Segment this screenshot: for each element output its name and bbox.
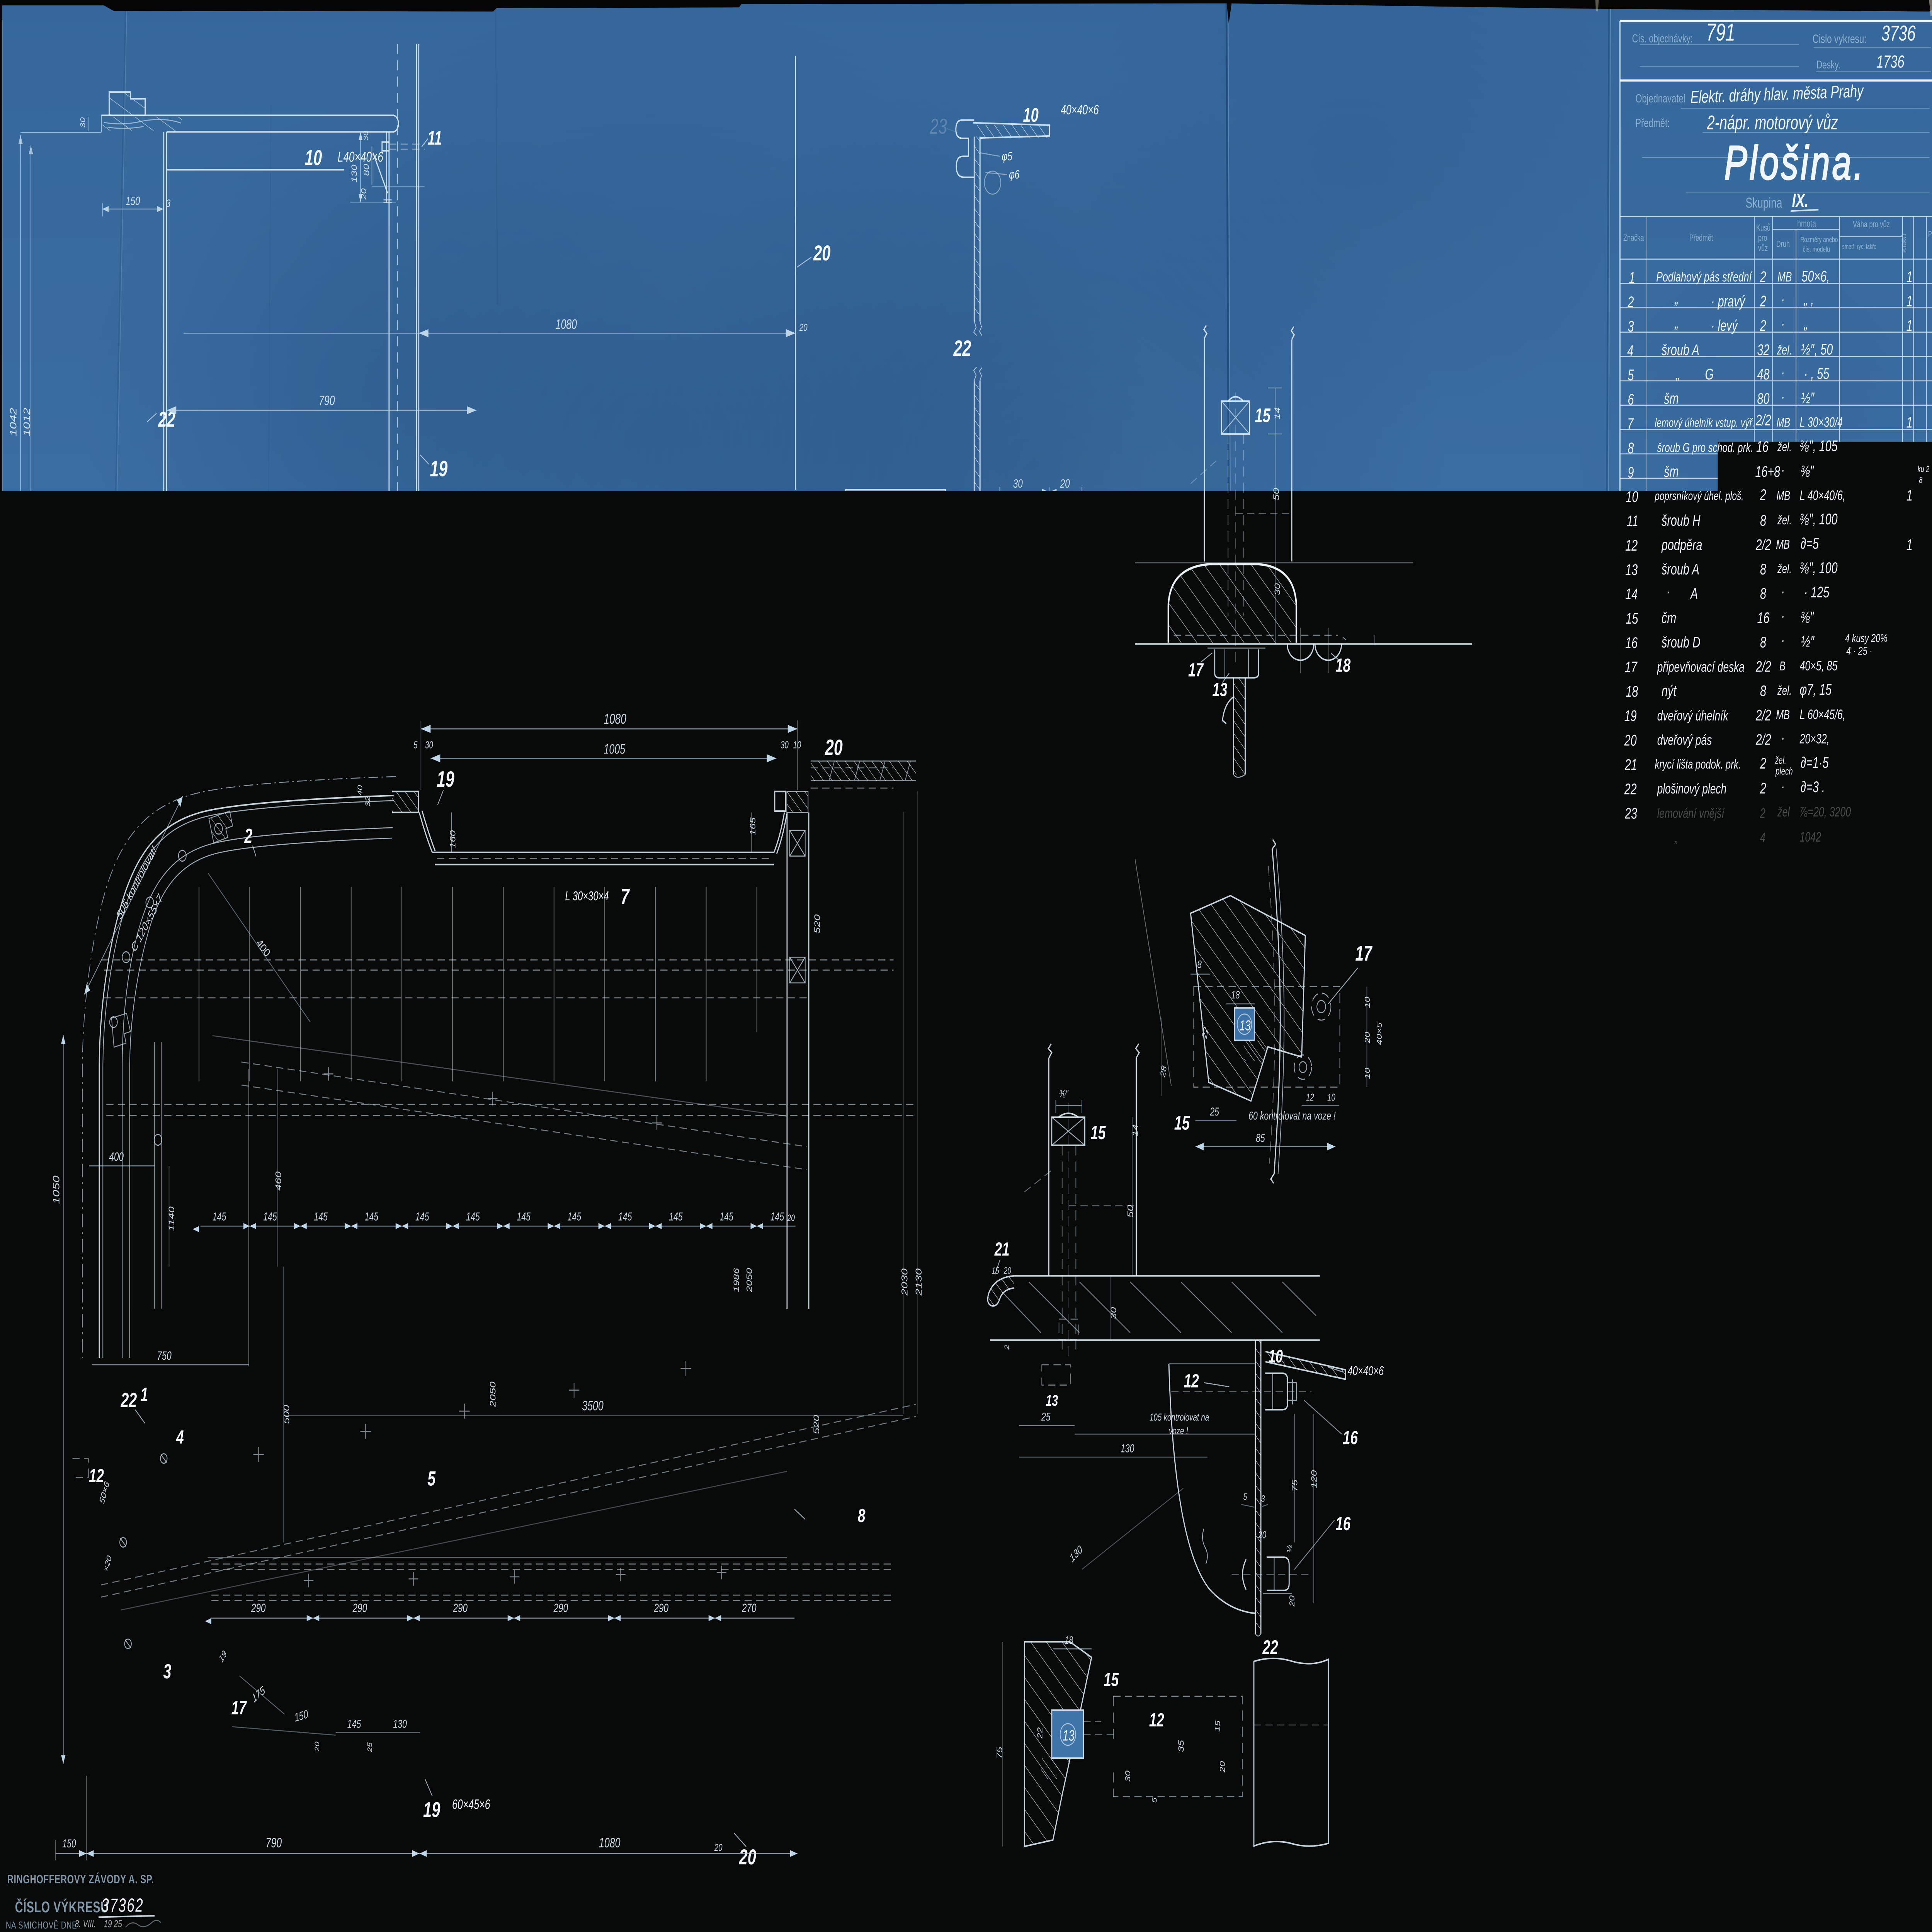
svg-text:1: 1: [1906, 317, 1913, 334]
svg-text:11: 11: [427, 128, 442, 149]
svg-text:⅜″, 105: ⅜″, 105: [1799, 437, 1838, 455]
svg-text:5: 5: [1628, 366, 1634, 384]
svg-text:Cislo vykresu:: Cislo vykresu:: [1813, 32, 1867, 46]
svg-text:žel: žel: [1777, 804, 1790, 820]
svg-text:10: 10: [793, 739, 801, 750]
svg-text:15: 15: [1255, 405, 1271, 427]
svg-text:9: 9: [1628, 464, 1634, 481]
svg-text:16: 16: [1756, 438, 1769, 456]
svg-text:145: 145: [347, 1718, 361, 1730]
svg-text:16: 16: [1625, 634, 1638, 651]
svg-text:1986: 1986: [732, 1268, 741, 1292]
svg-text:2/2: 2/2: [1755, 658, 1771, 675]
svg-text:1005: 1005: [604, 742, 626, 757]
svg-text:φ5: φ5: [1002, 149, 1012, 163]
svg-text:50×6,: 50×6,: [1801, 268, 1830, 285]
svg-text:25: 25: [996, 572, 1005, 586]
svg-text:18: 18: [1335, 655, 1350, 676]
svg-text:7: 7: [621, 884, 630, 908]
svg-text:150: 150: [126, 194, 140, 208]
svg-text:1: 1: [1088, 511, 1095, 532]
svg-text:MB: MB: [1777, 416, 1791, 430]
svg-text:šroub A: šroub A: [1662, 341, 1699, 359]
svg-text:1: 1: [1629, 269, 1635, 286]
svg-text:1050: 1050: [51, 1175, 61, 1204]
svg-text:18: 18: [1231, 989, 1240, 1001]
svg-text:1012: 1012: [22, 408, 32, 436]
svg-text:3: 3: [1628, 318, 1634, 335]
svg-text:21: 21: [1624, 756, 1637, 774]
svg-text:145: 145: [517, 1211, 531, 1223]
svg-text:· levý: · levý: [1711, 317, 1738, 334]
svg-text:·: ·: [1781, 778, 1785, 795]
svg-text:nýt: nýt: [1662, 682, 1677, 700]
svg-text:plošinový plech: plošinový plech: [1657, 781, 1726, 796]
svg-text:20: 20: [714, 1842, 723, 1853]
svg-text:dveřový úhelník: dveřový úhelník: [1657, 707, 1729, 723]
svg-text:60×45×6: 60×45×6: [452, 1797, 490, 1812]
svg-text:22: 22: [121, 1389, 137, 1412]
svg-text:12: 12: [1149, 1709, 1164, 1731]
svg-text:20: 20: [813, 241, 830, 265]
svg-text:500: 500: [282, 1405, 291, 1424]
svg-text:∂=1·5: ∂=1·5: [1801, 754, 1829, 771]
svg-text:2050: 2050: [745, 1268, 754, 1293]
svg-text:hmota: hmota: [1797, 218, 1816, 229]
svg-text:50×6: 50×6: [164, 598, 184, 612]
svg-text:L 40×40/6,: L 40×40/6,: [1799, 488, 1845, 503]
svg-text:15: 15: [1626, 610, 1638, 627]
svg-text:13: 13: [1063, 1728, 1075, 1744]
svg-text:16: 16: [1335, 1513, 1350, 1534]
svg-text:750: 750: [157, 1349, 172, 1362]
svg-text:∂=5: ∂=5: [1801, 535, 1819, 552]
svg-text:IX.: IX.: [1792, 190, 1808, 211]
svg-text:Předmět:: Předmět:: [1635, 116, 1670, 130]
svg-text:10: 10: [1626, 488, 1638, 505]
svg-text:10: 10: [305, 146, 322, 170]
svg-text:L 60×45/6,: L 60×45/6,: [1799, 707, 1845, 722]
svg-text:2050: 2050: [488, 1381, 497, 1408]
svg-text:A: A: [1690, 585, 1698, 602]
svg-text:145: 145: [770, 1211, 784, 1223]
svg-text:30: 30: [781, 739, 789, 750]
svg-text:smetř: ryc: lakřc: smetř: ryc: lakřc: [1842, 243, 1876, 251]
svg-text:32: 32: [364, 796, 372, 806]
svg-text:270: 270: [742, 1601, 756, 1615]
svg-text:šm: šm: [1664, 463, 1679, 481]
svg-text:15: 15: [1213, 1720, 1221, 1732]
svg-text:290: 290: [453, 1601, 468, 1615]
svg-text:32: 32: [1757, 341, 1770, 359]
svg-text:40×5: 40×5: [1375, 1022, 1383, 1045]
svg-text:17: 17: [1188, 660, 1204, 681]
svg-text:60 kontrolovat na voze !: 60 kontrolovat na voze !: [1248, 1110, 1336, 1122]
svg-text:„: „: [1803, 315, 1808, 332]
svg-text:21: 21: [994, 1239, 1010, 1260]
svg-text:MB: MB: [1777, 489, 1791, 503]
svg-text:12: 12: [1306, 1091, 1314, 1103]
svg-text:· pravý: · pravý: [1711, 293, 1746, 310]
svg-text:15: 15: [1091, 1122, 1106, 1143]
svg-text:791: 791: [1706, 18, 1735, 46]
svg-text:17: 17: [1625, 659, 1638, 676]
svg-text:žel.: žel.: [1777, 562, 1792, 576]
svg-text:4 kusy 20%: 4 kusy 20%: [1845, 632, 1888, 645]
svg-text:8: 8: [1760, 634, 1766, 651]
svg-text:10: 10: [1327, 1091, 1335, 1103]
svg-text:120: 120: [1310, 1470, 1318, 1488]
svg-text:1736: 1736: [1876, 52, 1904, 72]
svg-text:22: 22: [953, 336, 971, 361]
svg-text:1: 1: [141, 1384, 148, 1405]
svg-text:φ7, 15: φ7, 15: [1799, 681, 1832, 698]
svg-text:Značka: Značka: [1623, 233, 1644, 243]
svg-text:MB: MB: [1777, 269, 1792, 284]
svg-text:40×5, 85: 40×5, 85: [1799, 658, 1837, 673]
svg-text:žel.: žel.: [1775, 754, 1786, 766]
svg-text:žel.: žel.: [1777, 342, 1792, 357]
svg-text:460: 460: [274, 1171, 283, 1190]
svg-text:·: ·: [1781, 583, 1785, 600]
svg-text:20: 20: [1258, 1529, 1266, 1541]
svg-text:8: 8: [858, 1505, 866, 1526]
svg-text:3: 3: [163, 1660, 172, 1683]
svg-text:14: 14: [1625, 585, 1638, 603]
svg-text:½″, 50: ½″, 50: [1801, 341, 1833, 358]
svg-text:7: 7: [1627, 415, 1634, 432]
svg-text:145: 145: [669, 1211, 683, 1223]
svg-text:B: B: [1779, 659, 1786, 673]
svg-text:22: 22: [1262, 1637, 1279, 1658]
svg-text:8: 8: [1197, 959, 1202, 971]
svg-text:20: 20: [359, 188, 367, 200]
svg-text:„: „: [1675, 366, 1680, 383]
svg-text:lemový úhelník vstup. výř.: lemový úhelník vstup. výř.: [1655, 416, 1755, 430]
svg-text:8: 8: [1760, 512, 1766, 529]
svg-text:15: 15: [1104, 1669, 1119, 1690]
svg-text:ČÍSLO VÝKRESU: ČÍSLO VÝKRESU: [15, 1898, 109, 1916]
svg-text:„: „: [1674, 290, 1679, 307]
svg-text:20: 20: [825, 735, 843, 760]
svg-text:50: 50: [1126, 1204, 1135, 1218]
svg-text:145: 145: [314, 1211, 328, 1223]
svg-text:20: 20: [1060, 476, 1070, 490]
svg-text:2: 2: [1760, 806, 1765, 821]
svg-text:7: 7: [570, 1658, 579, 1682]
svg-text:25: 25: [1209, 1106, 1219, 1118]
svg-text:2: 2: [244, 825, 253, 847]
svg-text:35: 35: [1177, 1740, 1185, 1752]
svg-text:Objednavatel: Objednavatel: [1635, 92, 1685, 105]
svg-text:4 · 25 ·: 4 · 25 ·: [1846, 645, 1872, 657]
svg-text:145: 145: [719, 1211, 733, 1223]
svg-text:½″: ½″: [1801, 389, 1815, 407]
svg-text:½″: ½″: [1043, 668, 1053, 681]
svg-text:6: 6: [1628, 391, 1634, 408]
svg-text:20: 20: [1363, 1032, 1371, 1044]
svg-text:·: ·: [1781, 729, 1785, 747]
svg-text:2: 2: [1760, 780, 1766, 797]
svg-text:· 125: · 125: [1804, 583, 1830, 601]
svg-text:Desky.: Desky.: [1816, 58, 1840, 71]
svg-text:130: 130: [393, 1718, 407, 1730]
svg-text:20: 20: [1288, 1595, 1296, 1607]
svg-text:20: 20: [1624, 732, 1637, 749]
svg-text:½″: ½″: [1801, 633, 1815, 650]
svg-text:·: ·: [1666, 583, 1670, 600]
svg-text:∂=3 .: ∂=3 .: [1801, 778, 1825, 796]
svg-text:2030: 2030: [900, 1269, 909, 1296]
svg-text:145: 145: [263, 1211, 277, 1223]
svg-text:11: 11: [1627, 512, 1638, 530]
svg-text:18: 18: [1626, 683, 1638, 701]
svg-text:13: 13: [1046, 1392, 1058, 1409]
svg-text:L 30×30/4: L 30×30/4: [1799, 415, 1842, 430]
svg-text:8: 8: [1760, 682, 1766, 700]
svg-text:18: 18: [1065, 1634, 1073, 1646]
svg-text:„ ,: „ ,: [1803, 291, 1814, 308]
svg-text:165: 165: [749, 817, 757, 835]
svg-text:lemování vnější: lemování vnější: [1657, 806, 1725, 821]
svg-text:3500: 3500: [582, 1398, 604, 1413]
svg-text:3: 3: [1261, 1493, 1265, 1504]
svg-text:22: 22: [1624, 781, 1637, 798]
svg-text:23: 23: [1624, 805, 1637, 822]
svg-text:145: 145: [618, 1211, 632, 1223]
svg-text:17: 17: [1355, 942, 1372, 965]
svg-text:22: 22: [1036, 1727, 1044, 1739]
svg-text:30: 30: [1109, 1307, 1118, 1319]
svg-text:2: 2: [1003, 1345, 1010, 1350]
svg-text:10: 10: [1363, 1068, 1371, 1079]
svg-text:5: 5: [427, 1467, 435, 1490]
svg-text:2: 2: [326, 600, 334, 621]
svg-text:8: 8: [1628, 439, 1634, 457]
svg-text:20: 20: [1218, 1761, 1226, 1773]
svg-text:105 kontrolovat na: 105 kontrolovat na: [1150, 1411, 1209, 1423]
svg-text:1: 1: [1906, 536, 1913, 554]
svg-text:2/2: 2/2: [1755, 412, 1771, 429]
svg-text:Váha pro vůz: Váha pro vůz: [1853, 220, 1890, 230]
svg-text:poprsníkový úhel. ploš.: poprsníkový úhel. ploš.: [1655, 489, 1744, 503]
svg-text:3736: 3736: [1881, 22, 1916, 46]
svg-text:290: 290: [251, 1601, 265, 1615]
svg-text:20×32,: 20×32,: [1799, 731, 1830, 747]
svg-text:30: 30: [44, 639, 51, 649]
svg-text:·: ·: [1781, 315, 1785, 332]
svg-text:1: 1: [150, 599, 157, 621]
svg-text:4: 4: [176, 1427, 184, 1448]
svg-text:žel.: žel.: [1777, 684, 1792, 698]
svg-text:20: 20: [739, 1845, 756, 1869]
svg-text:1080: 1080: [556, 317, 577, 332]
svg-text:⅜″, 100: ⅜″, 100: [1799, 559, 1838, 577]
svg-text:2: 2: [1760, 755, 1766, 772]
svg-text:žel.: žel.: [1777, 440, 1792, 454]
svg-text:2: 2: [1760, 293, 1766, 310]
svg-text:20: 20: [799, 321, 808, 333]
svg-text:790: 790: [319, 393, 335, 408]
svg-text:145: 145: [568, 1211, 582, 1223]
svg-text:17: 17: [231, 1697, 247, 1719]
svg-text:20: 20: [787, 1213, 795, 1223]
svg-text:130: 130: [1121, 1442, 1134, 1455]
svg-text:Rozměry anebo: Rozměry anebo: [1800, 235, 1838, 244]
svg-text:25: 25: [367, 1742, 374, 1753]
svg-text:145: 145: [415, 1211, 429, 1223]
svg-text:1080: 1080: [599, 1835, 621, 1850]
svg-text:šroub H: šroub H: [1662, 512, 1701, 529]
svg-text:·: ·: [1781, 291, 1785, 308]
svg-text:40×40×6: 40×40×6: [1061, 102, 1099, 117]
svg-text:40: 40: [356, 785, 364, 795]
svg-text:80: 80: [362, 163, 371, 176]
svg-text:plech: plech: [1775, 765, 1793, 777]
svg-text:5: 5: [1243, 1491, 1247, 1502]
svg-text:·: ·: [1781, 631, 1785, 649]
svg-text:1: 1: [1906, 268, 1913, 286]
svg-text:790: 790: [266, 1835, 282, 1850]
svg-text:podpěra: podpěra: [1661, 536, 1702, 554]
svg-text:2-nápr. motorový vůz: 2-nápr. motorový vůz: [1707, 112, 1838, 133]
svg-text:8: 8: [1919, 475, 1922, 485]
svg-text:290: 290: [654, 1601, 668, 1615]
svg-text:15: 15: [992, 1265, 999, 1276]
svg-text:Plošina.: Plošina.: [1724, 136, 1866, 189]
svg-text:1042: 1042: [1799, 830, 1821, 845]
svg-text:2: 2: [1760, 486, 1766, 503]
svg-text:13: 13: [1625, 561, 1638, 578]
svg-text:MB: MB: [1776, 708, 1790, 722]
svg-text:16: 16: [1757, 609, 1770, 627]
svg-text:19: 19: [423, 1798, 440, 1822]
svg-text:400: 400: [109, 1150, 124, 1163]
svg-text:čm: čm: [1662, 609, 1676, 627]
svg-text:50: 50: [1060, 575, 1069, 588]
svg-text:vůz: vůz: [1758, 243, 1768, 253]
svg-text:20: 20: [314, 1742, 321, 1752]
svg-text:Kusů: Kusů: [1756, 223, 1770, 233]
svg-text:40×40×6: 40×40×6: [1347, 1364, 1384, 1378]
svg-text:⅜″, 100: ⅜″, 100: [1799, 510, 1838, 528]
svg-text:37362: 37362: [101, 1895, 144, 1916]
svg-text:4: 4: [1760, 830, 1765, 845]
svg-text:MB: MB: [1776, 537, 1790, 552]
svg-text:25: 25: [1041, 1411, 1051, 1423]
svg-text:dveřový pás: dveřový pás: [1657, 732, 1712, 748]
svg-text:šroub G pro schod. prk.: šroub G pro schod. prk.: [1657, 441, 1753, 455]
svg-text:15: 15: [1174, 1112, 1190, 1134]
svg-text:19: 19: [1624, 707, 1637, 725]
svg-text:14: 14: [1131, 1124, 1140, 1136]
svg-text:RINGHOFFEROVY ZÁVODY A. SP.: RINGHOFFEROVY ZÁVODY A. SP.: [7, 1872, 154, 1886]
svg-text:šroub D: šroub D: [1662, 634, 1701, 651]
svg-text:pro: pro: [1758, 233, 1767, 243]
svg-text:·: ·: [1781, 364, 1785, 381]
svg-text:19 25: 19 25: [104, 1918, 122, 1930]
svg-text:14: 14: [1273, 407, 1282, 419]
svg-text:2: 2: [1760, 268, 1766, 286]
svg-text:19: 19: [430, 456, 447, 481]
svg-text:φ6: φ6: [1009, 167, 1020, 181]
svg-text:1042: 1042: [9, 408, 19, 436]
svg-text:10: 10: [1023, 104, 1039, 126]
svg-text:1140: 1140: [167, 1206, 176, 1231]
svg-text:12: 12: [1625, 537, 1638, 554]
svg-text:30: 30: [1124, 1770, 1132, 1782]
svg-text:5: 5: [1151, 1798, 1158, 1803]
svg-text:2/2: 2/2: [1755, 707, 1771, 724]
svg-text:šm: šm: [1664, 390, 1679, 407]
svg-text:2: 2: [1628, 293, 1634, 311]
svg-text:80: 80: [1757, 390, 1770, 407]
svg-text:10: 10: [997, 608, 1006, 621]
svg-text:Cís. objednávky:: Cís. objednávky:: [1632, 32, 1693, 45]
svg-text:12: 12: [1184, 1371, 1199, 1392]
svg-text:85: 85: [1256, 1132, 1265, 1145]
svg-text:Skupina: Skupina: [1746, 195, 1782, 211]
svg-text:2: 2: [1760, 317, 1766, 334]
svg-text:·: ·: [1781, 388, 1785, 405]
svg-text:8: 8: [1760, 585, 1766, 602]
svg-text:5: 5: [413, 739, 418, 750]
svg-text:290: 290: [352, 1601, 367, 1615]
svg-text:L 30×30×4: L 30×30×4: [565, 889, 609, 903]
svg-text:50: 50: [11, 615, 19, 627]
svg-text:19: 19: [437, 767, 454, 791]
svg-text:připevňovací deska: připevňovací deska: [1657, 659, 1745, 675]
svg-text:L 60×45×6: L 60×45×6: [166, 680, 212, 695]
svg-text:P: P: [1928, 229, 1932, 238]
svg-text:145: 145: [466, 1211, 480, 1223]
svg-text:75: 75: [1291, 1480, 1299, 1492]
svg-text:· , 55: · , 55: [1804, 365, 1830, 383]
svg-text:10: 10: [1269, 1346, 1283, 1366]
svg-text:520: 520: [813, 914, 822, 934]
svg-text:1: 1: [1906, 487, 1913, 504]
svg-text:voze !: voze !: [1169, 1425, 1189, 1436]
svg-text:160: 160: [449, 830, 457, 848]
svg-text:⅜″: ⅜″: [1801, 463, 1814, 480]
svg-text:čís. modelu: čís. modelu: [1803, 245, 1830, 253]
svg-text:3: 3: [166, 198, 171, 210]
svg-text:Předmět: Předmět: [1689, 233, 1713, 243]
svg-text:4: 4: [1037, 510, 1046, 533]
svg-text:G: G: [1705, 366, 1713, 383]
svg-text:16+8: 16+8: [1755, 463, 1781, 481]
svg-text:10: 10: [1363, 997, 1371, 1008]
svg-text:⅜″: ⅜″: [1059, 1088, 1069, 1100]
svg-text:12: 12: [89, 1465, 104, 1486]
svg-text:½: ½: [1286, 1544, 1293, 1553]
svg-text:4: 4: [1627, 342, 1633, 359]
svg-text:NA SMICHOVĚ DNE: NA SMICHOVĚ DNE: [6, 1919, 77, 1931]
svg-text:130: 130: [350, 164, 359, 182]
svg-text:2130: 2130: [913, 1269, 923, 1296]
svg-text:30: 30: [1013, 476, 1023, 490]
svg-text:48: 48: [1757, 366, 1770, 383]
svg-text:50: 50: [1272, 488, 1281, 501]
svg-text:2/2: 2/2: [1755, 536, 1771, 554]
svg-text:8. VIII.: 8. VIII.: [75, 1918, 96, 1930]
svg-text:13: 13: [1213, 679, 1228, 701]
svg-text:290: 290: [553, 1601, 568, 1615]
svg-text:1: 1: [1906, 293, 1913, 310]
svg-text:⅜″: ⅜″: [1801, 609, 1814, 626]
svg-text:·: ·: [1781, 607, 1785, 624]
svg-text:Podlahový pás střední: Podlahový pás střední: [1656, 269, 1752, 284]
